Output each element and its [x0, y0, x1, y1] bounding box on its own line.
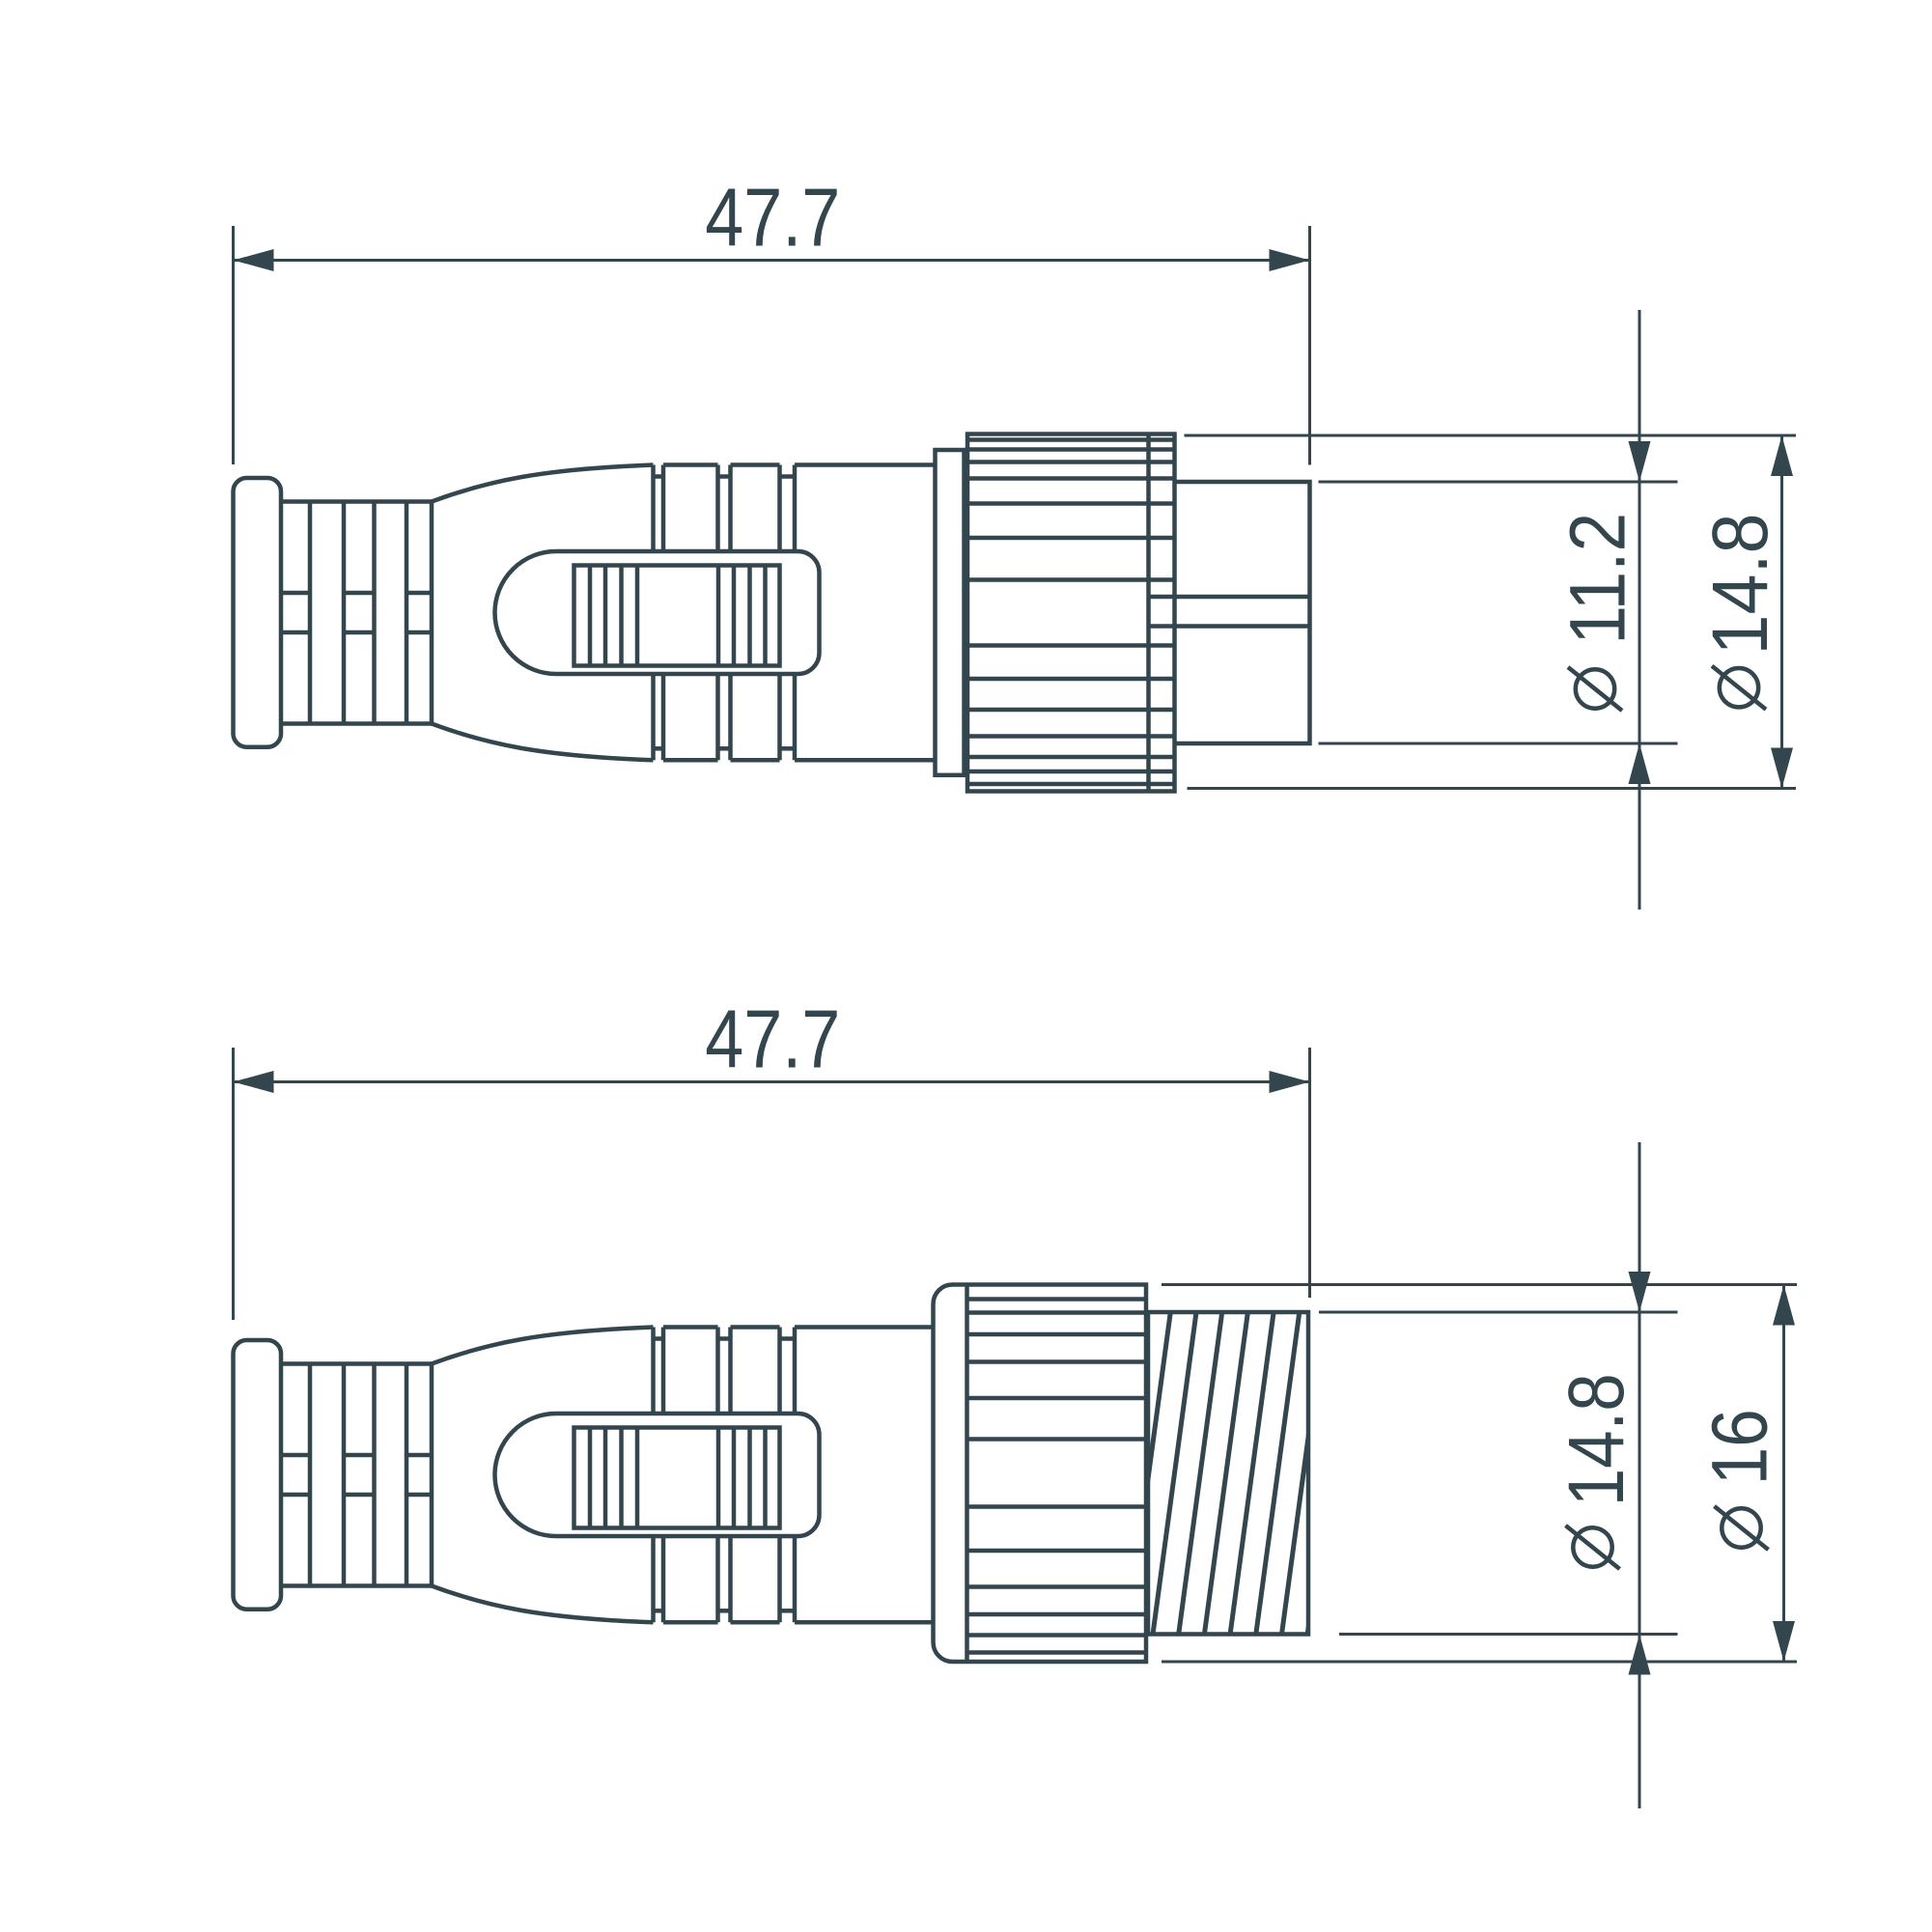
svg-text:14.8: 14.8	[1553, 1373, 1640, 1506]
svg-text:47.7: 47.7	[705, 994, 840, 1086]
svg-text:14.8: 14.8	[1696, 514, 1784, 656]
svg-text:11.2: 11.2	[1554, 513, 1642, 645]
svg-text:47.7: 47.7	[705, 173, 840, 265]
svg-text:16: 16	[1696, 1409, 1784, 1485]
